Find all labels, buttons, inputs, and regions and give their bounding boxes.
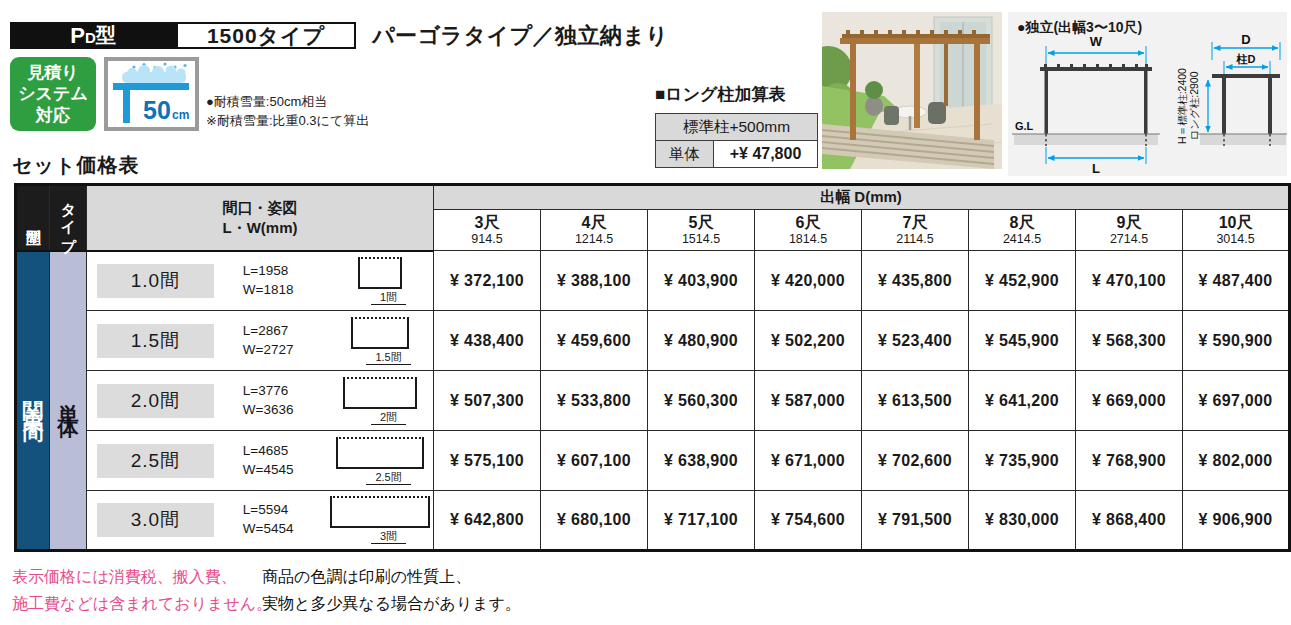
addon-row-value: +¥ 47,800	[714, 141, 818, 168]
snow-notes: ●耐積雪量:50cm相当 ※耐積雪量:比重0.3にて算出	[206, 93, 369, 131]
depth-col-header: 6尺1814.5	[755, 210, 862, 251]
front-l-label: L	[1092, 161, 1100, 174]
product-photo	[822, 12, 1002, 169]
plan-shape: 1間	[326, 257, 433, 305]
depth-col-header: 7尺2114.5	[862, 210, 969, 251]
plan-dim-label: 2.5間	[366, 470, 410, 485]
price-cell: ¥ 452,900	[969, 251, 1076, 311]
badge-line: システム	[18, 83, 88, 105]
plan-rect	[358, 257, 402, 289]
price-table: 間型 タイプ 間口・姿図 L・W(mm) 出幅 D(mm) 3尺914.54尺1…	[14, 183, 1291, 552]
plan-rect	[343, 377, 417, 409]
price-cell: ¥ 607,100	[541, 431, 648, 491]
addon-header-cell: 標準柱+500mm	[656, 114, 818, 141]
depth-col-header: 5尺1514.5	[648, 210, 755, 251]
plan-shape: 1.5間	[326, 317, 433, 365]
lw-dimensions: L=5594W=5454	[243, 501, 326, 539]
plan-dim-label: 1.5間	[366, 350, 410, 365]
col-header-span-type: 間型	[16, 185, 50, 251]
gl-label: G.L	[1015, 120, 1034, 132]
price-cell: ¥ 560,300	[648, 371, 755, 431]
side-pillar-d-label: 柱D	[1236, 53, 1256, 65]
price-cell: ¥ 403,900	[648, 251, 755, 311]
col-header-depth: 出幅 D(mm)	[434, 185, 1290, 210]
price-table-body: 関東間単体1.0間L=1958W=18181間¥ 372,100¥ 388,10…	[16, 251, 1290, 551]
price-cell: ¥ 545,900	[969, 311, 1076, 371]
price-cell: ¥ 590,900	[1183, 311, 1290, 371]
depth-col-header: 10尺3014.5	[1183, 210, 1290, 251]
col-header-spec: 間口・姿図 L・W(mm)	[87, 185, 434, 251]
addon-row-label: 単体	[656, 141, 714, 168]
price-cell: ¥ 480,900	[648, 311, 755, 371]
lw-dimensions: L=2867W=2727	[243, 322, 326, 360]
price-cell: ¥ 587,000	[755, 371, 862, 431]
spec-cell: 3.0間L=5594W=54543間	[87, 491, 434, 551]
plan-dim-label: 1間	[371, 290, 406, 305]
price-cell: ¥ 802,000	[1183, 431, 1290, 491]
catalog-page: PD型 1500タイプ パーゴラタイプ／独立納まり 見積り システム 対応	[0, 0, 1291, 625]
span-label: 2.0間	[97, 384, 214, 418]
long-pillar-addon: ■ロング柱加算表 標準柱+500mm 単体 +¥ 47,800	[655, 83, 818, 168]
estimate-system-badge: 見積り システム 対応	[10, 57, 96, 131]
lw-dimensions: L=1958W=1818	[243, 262, 326, 300]
lw-dimensions: L=4685W=4545	[243, 442, 326, 480]
price-cell: ¥ 768,900	[1076, 431, 1183, 491]
badge-line: 見積り	[27, 62, 78, 84]
addon-table-title: ■ロング柱加算表	[655, 83, 818, 106]
price-cell: ¥ 533,800	[541, 371, 648, 431]
price-row: 2.0間L=3776W=36362間¥ 507,300¥ 533,800¥ 56…	[16, 371, 1290, 431]
footnote-color-disclaimer: 商品の色調は印刷の性質上、 実物と多少異なる場合があります。	[262, 563, 521, 617]
depth-col-header: 8尺2414.5	[969, 210, 1076, 251]
depth-col-header: 4尺1214.5	[541, 210, 648, 251]
span-label: 1.0間	[97, 264, 214, 298]
span-label: 1.5間	[97, 324, 214, 358]
price-cell: ¥ 502,200	[755, 311, 862, 371]
footnote-line: 実物と多少異なる場合があります。	[262, 590, 521, 617]
title-bar: PD型 1500タイプ パーゴラタイプ／独立納まり	[10, 22, 669, 49]
page-title: パーゴラタイプ／独立納まり	[372, 22, 669, 49]
price-cell: ¥ 868,400	[1076, 491, 1183, 551]
snow-load-icon: 50 cm	[104, 57, 199, 131]
plan-shape: 2間	[326, 377, 433, 425]
price-cell: ¥ 372,100	[434, 251, 541, 311]
price-cell: ¥ 717,100	[648, 491, 755, 551]
h-long-label: ロング柱:2900	[1188, 71, 1200, 140]
footnote-line: 施工費などは含まれておりません。	[12, 590, 272, 617]
type-badge: 1500タイプ	[176, 22, 356, 49]
spec-cell: 2.5間L=4685W=45452.5間	[87, 431, 434, 491]
footnotes: 表示価格には消費税、搬入費、 施工費などは含まれておりません。 商品の色調は印刷…	[0, 563, 1291, 623]
price-row: 3.0間L=5594W=54543間¥ 642,800¥ 680,100¥ 71…	[16, 491, 1290, 551]
dimension-diagram-panel: ●独立(出幅3〜10尺) W	[1008, 12, 1287, 176]
spec-header-line1: 間口・姿図	[87, 198, 433, 218]
plan-dim-label: 2間	[371, 410, 406, 425]
plan-shape: 3間	[326, 496, 433, 544]
snow-note-line: ●耐積雪量:50cm相当	[206, 93, 369, 112]
span-label: 3.0間	[97, 503, 214, 537]
footnote-price-disclaimer: 表示価格には消費税、搬入費、 施工費などは含まれておりません。	[12, 563, 272, 617]
price-cell: ¥ 459,600	[541, 311, 648, 371]
price-cell: ¥ 613,500	[862, 371, 969, 431]
price-cell: ¥ 680,100	[541, 491, 648, 551]
price-cell: ¥ 906,900	[1183, 491, 1290, 551]
model-suffix: 型	[96, 22, 116, 49]
footnote-line: 表示価格には消費税、搬入費、	[12, 563, 272, 590]
footnote-line: 商品の色調は印刷の性質上、	[262, 563, 521, 590]
depth-col-header: 9尺2714.5	[1076, 210, 1183, 251]
model-sub: D	[85, 29, 96, 46]
side-d-label: D	[1241, 34, 1250, 47]
price-cell: ¥ 702,600	[862, 431, 969, 491]
front-view: W G.L L	[1012, 34, 1160, 174]
snow-value: 50	[143, 96, 171, 124]
price-cell: ¥ 507,300	[434, 371, 541, 431]
top-section: PD型 1500タイプ パーゴラタイプ／独立納まり 見積り システム 対応	[0, 0, 1291, 183]
span-label: 2.5間	[97, 444, 214, 478]
span-type-group-cell: 関東間	[16, 251, 50, 551]
spec-cell: 1.0間L=1958W=18181間	[87, 251, 434, 311]
price-cell: ¥ 435,800	[862, 251, 969, 311]
price-cell: ¥ 470,100	[1076, 251, 1183, 311]
col-header-type: タイプ	[50, 185, 87, 251]
price-cell: ¥ 638,900	[648, 431, 755, 491]
h-standard-label: H＝標準柱:2400	[1176, 68, 1188, 144]
spec-header-line2: L・W(mm)	[87, 218, 433, 238]
price-cell: ¥ 487,400	[1183, 251, 1290, 311]
lw-dimensions: L=3776W=3636	[243, 382, 326, 420]
price-cell: ¥ 388,100	[541, 251, 648, 311]
plan-rect	[351, 317, 409, 349]
price-cell: ¥ 791,500	[862, 491, 969, 551]
price-cell: ¥ 642,800	[434, 491, 541, 551]
spec-cell: 1.5間L=2867W=27271.5間	[87, 311, 434, 371]
price-cell: ¥ 523,400	[862, 311, 969, 371]
badge-line: 対応	[36, 105, 70, 127]
price-table-title: セット価格表	[12, 152, 139, 179]
plan-shape: 2.5間	[326, 437, 433, 485]
spec-cell: 2.0間L=3776W=36362間	[87, 371, 434, 431]
price-row: 1.5間L=2867W=27271.5間¥ 438,400¥ 459,600¥ …	[16, 311, 1290, 371]
price-cell: ¥ 830,000	[969, 491, 1076, 551]
plan-rect	[336, 437, 424, 469]
price-cell: ¥ 671,000	[755, 431, 862, 491]
price-cell: ¥ 420,000	[755, 251, 862, 311]
price-cell: ¥ 735,900	[969, 431, 1076, 491]
side-view: D 柱D	[1198, 34, 1287, 146]
price-cell: ¥ 669,000	[1076, 371, 1183, 431]
price-row: 2.5間L=4685W=45452.5間¥ 575,100¥ 607,100¥ …	[16, 431, 1290, 491]
price-cell: ¥ 438,400	[434, 311, 541, 371]
type-group-cell: 単体	[50, 251, 87, 551]
addon-table: 標準柱+500mm 単体 +¥ 47,800	[655, 113, 818, 168]
price-cell: ¥ 575,100	[434, 431, 541, 491]
depth-col-header: 3尺914.5	[434, 210, 541, 251]
price-cell: ¥ 641,200	[969, 371, 1076, 431]
model-prefix: P	[70, 23, 85, 49]
price-cell: ¥ 697,000	[1183, 371, 1290, 431]
snow-unit: cm	[172, 108, 189, 122]
plan-rect	[330, 496, 430, 528]
model-badge: PD型	[10, 22, 176, 49]
front-w-label: W	[1090, 34, 1103, 49]
price-cell: ¥ 568,300	[1076, 311, 1183, 371]
price-cell: ¥ 754,600	[755, 491, 862, 551]
price-row: 関東間単体1.0間L=1958W=18181間¥ 372,100¥ 388,10…	[16, 251, 1290, 311]
plan-dim-label: 3間	[371, 529, 406, 544]
snow-note-line: ※耐積雪量:比重0.3にて算出	[206, 112, 369, 131]
